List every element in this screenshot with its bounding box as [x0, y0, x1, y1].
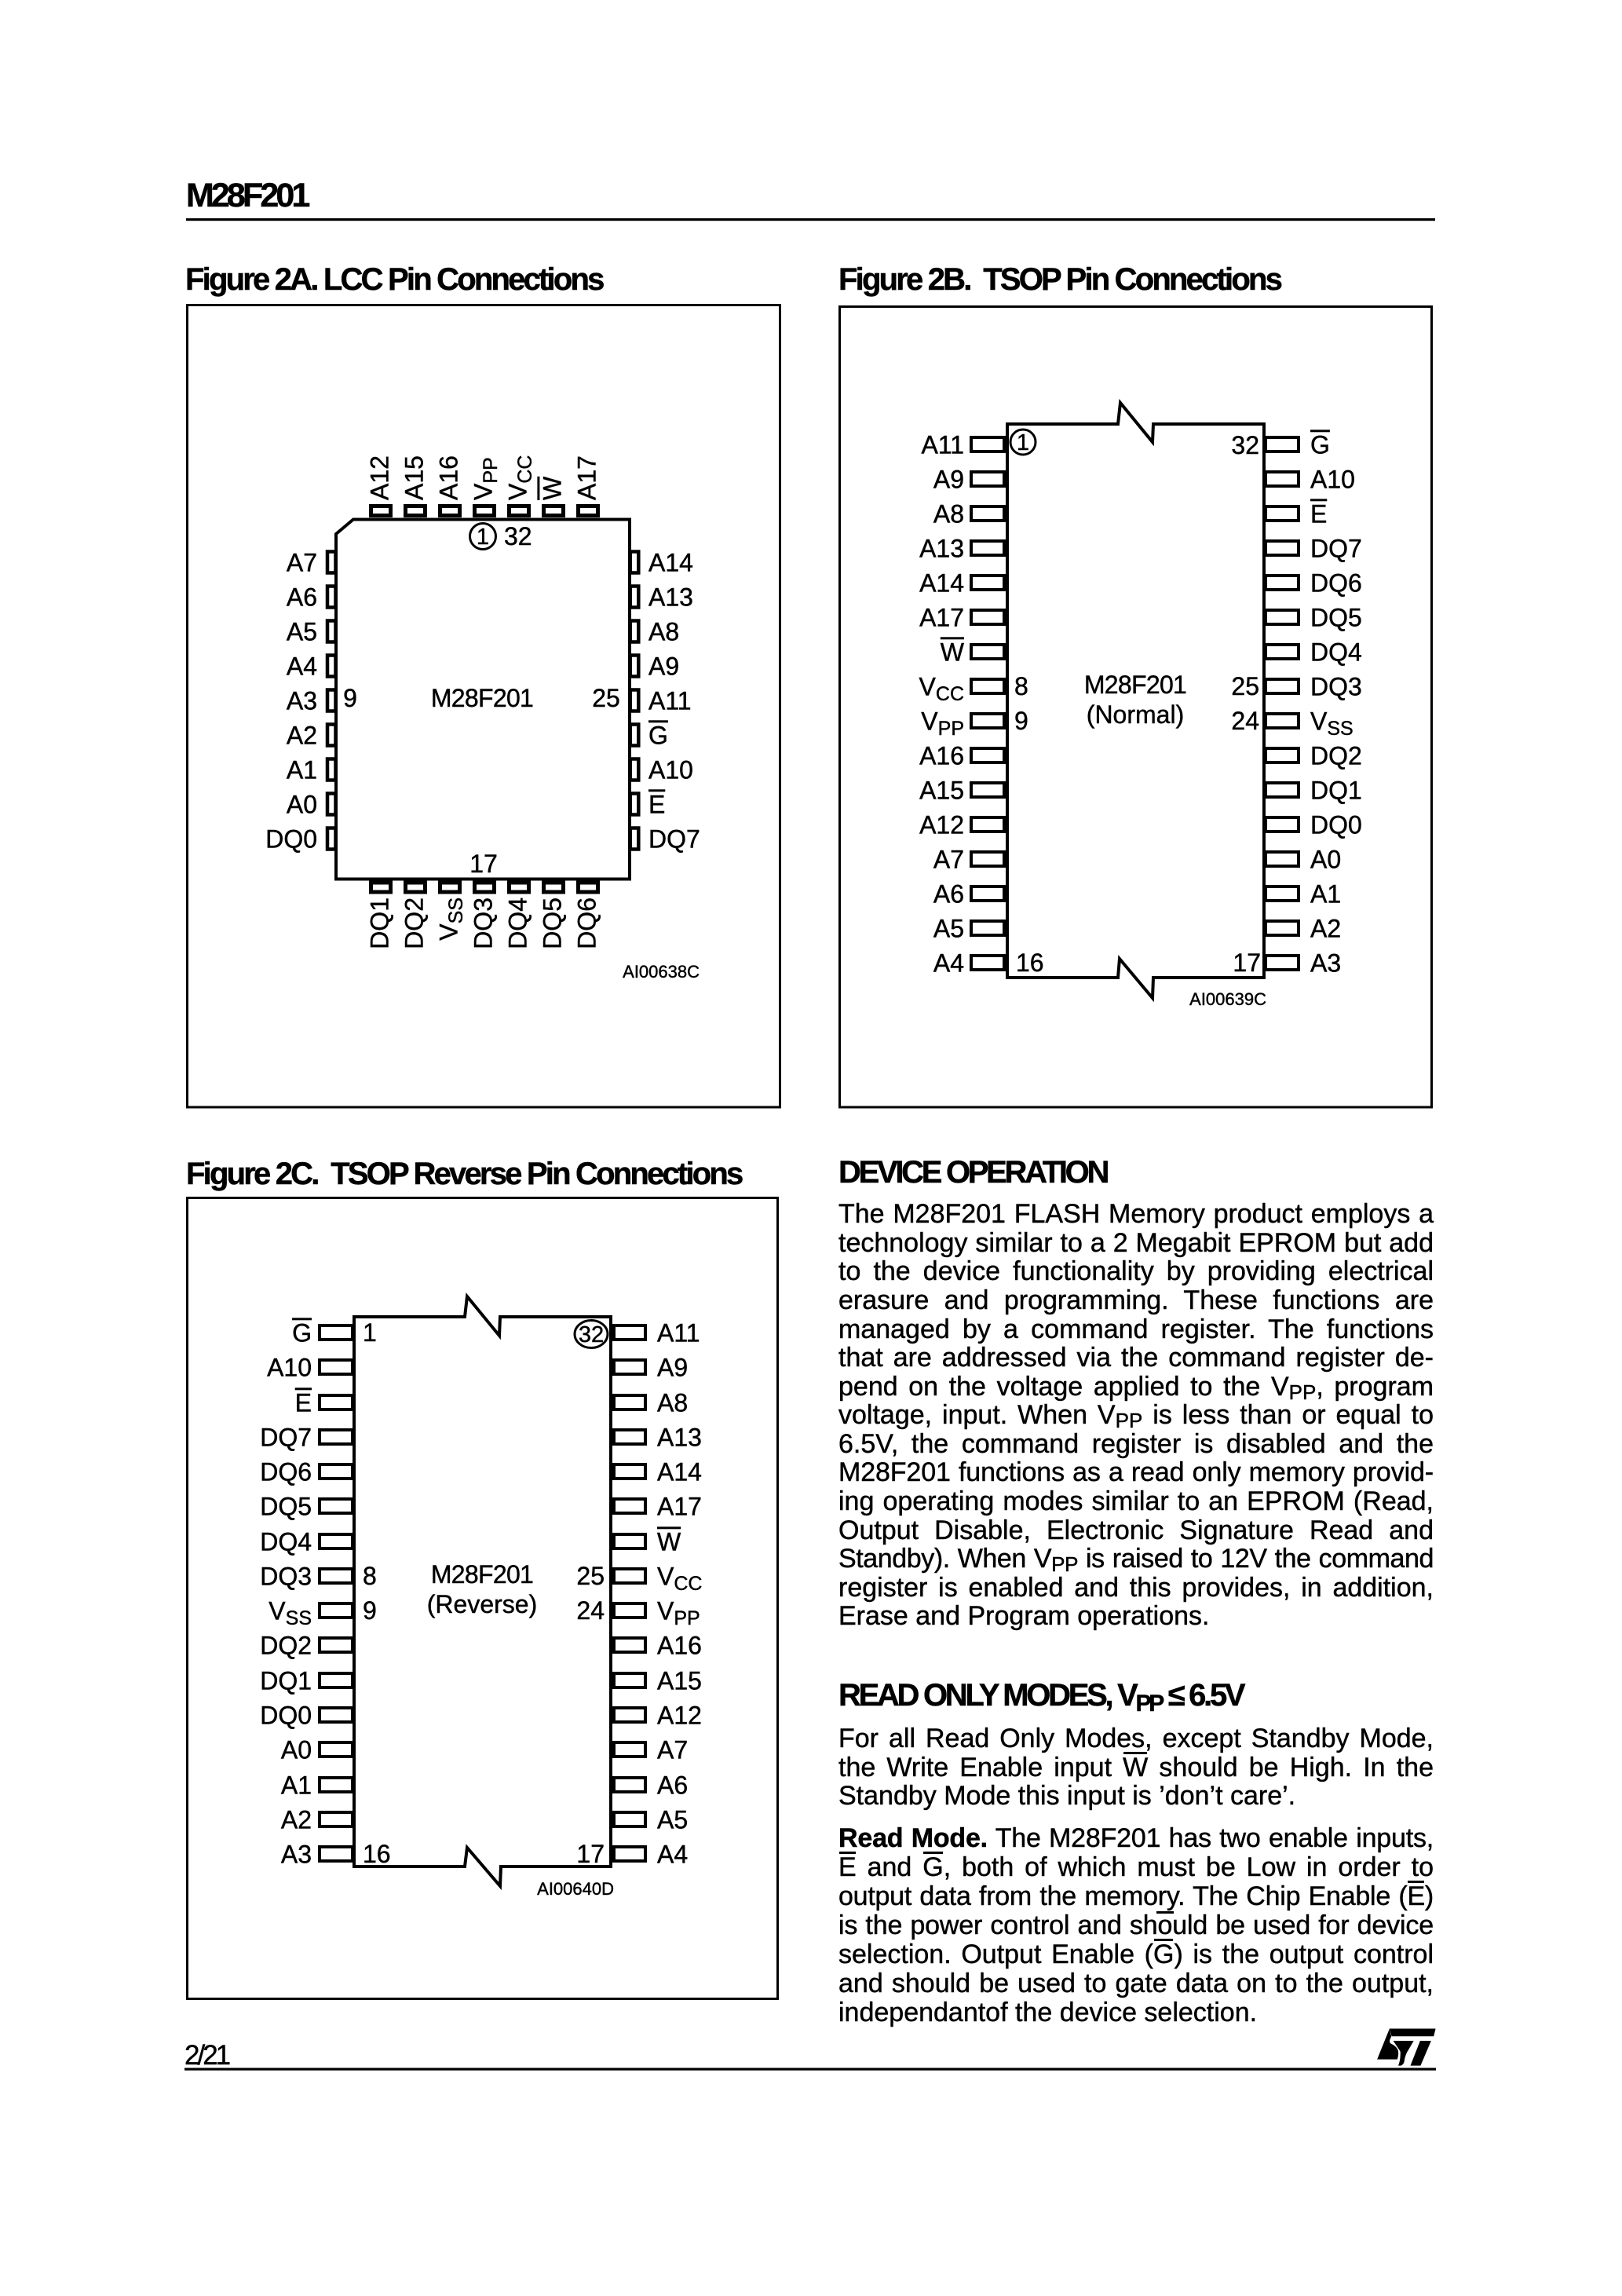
- svg-text:DQ2: DQ2: [400, 898, 428, 949]
- svg-text:A9: A9: [648, 652, 679, 680]
- svg-text:A3: A3: [1310, 949, 1341, 977]
- svg-text:DQ1: DQ1: [1310, 776, 1362, 804]
- svg-text:W: W: [941, 638, 965, 666]
- svg-text:A1: A1: [287, 755, 317, 784]
- svg-text:A0: A0: [1310, 845, 1341, 873]
- svg-text:A2: A2: [281, 1805, 312, 1834]
- svg-text:Figure 2A. LCC Pin Connections: Figure 2A. LCC Pin Connections: [185, 262, 604, 297]
- svg-text:A8: A8: [933, 499, 964, 528]
- svg-text:A5: A5: [287, 617, 317, 645]
- svg-text:DQ5: DQ5: [1310, 603, 1362, 631]
- svg-text:A4: A4: [657, 1840, 688, 1868]
- svg-text:DQ2: DQ2: [1310, 741, 1362, 770]
- svg-text:Figure 2C. TSOP Reverse Pin C: Figure 2C. TSOP Reverse Pin Connections: [186, 1157, 743, 1191]
- svg-text:1: 1: [477, 525, 489, 550]
- svg-text:A15: A15: [657, 1666, 702, 1695]
- svg-text:W: W: [538, 476, 566, 500]
- svg-text:A10: A10: [267, 1353, 312, 1381]
- svg-text:A2: A2: [287, 721, 317, 749]
- svg-text:A14: A14: [919, 569, 964, 597]
- svg-text:16: 16: [363, 1840, 391, 1868]
- svg-text:A14: A14: [657, 1457, 702, 1486]
- svg-text:24: 24: [1231, 707, 1259, 735]
- svg-text:32: 32: [504, 522, 532, 550]
- svg-text:DQ0: DQ0: [260, 1701, 312, 1729]
- svg-text:32: 32: [1231, 431, 1259, 459]
- svg-text:DQ7: DQ7: [648, 824, 700, 853]
- svg-text:A10: A10: [1310, 465, 1355, 493]
- svg-text:9: 9: [363, 1596, 377, 1625]
- svg-text:A6: A6: [657, 1771, 688, 1799]
- svg-text:W: W: [657, 1527, 681, 1556]
- svg-text:A16: A16: [434, 455, 462, 500]
- svg-text:VSS: VSS: [1310, 707, 1353, 740]
- svg-text:A11: A11: [657, 1318, 700, 1347]
- svg-text:8: 8: [363, 1562, 377, 1590]
- svg-text:24: 24: [576, 1596, 605, 1625]
- svg-text:VSS: VSS: [269, 1596, 312, 1629]
- svg-text:VCC: VCC: [503, 455, 536, 500]
- svg-text:A9: A9: [657, 1353, 688, 1381]
- svg-text:25: 25: [592, 684, 620, 712]
- svg-text:32: 32: [579, 1322, 604, 1347]
- svg-text:A13: A13: [648, 583, 693, 611]
- svg-text:A2: A2: [1310, 914, 1341, 942]
- svg-text:DQ4: DQ4: [503, 898, 532, 949]
- svg-text:A14: A14: [648, 548, 693, 576]
- svg-text:8: 8: [1014, 672, 1028, 700]
- svg-text:A3: A3: [287, 686, 317, 715]
- svg-text:25: 25: [576, 1562, 605, 1590]
- svg-text:DQ0: DQ0: [1310, 810, 1362, 839]
- svg-text:17: 17: [576, 1840, 605, 1868]
- svg-text:A3: A3: [281, 1840, 312, 1868]
- svg-text:2/21: 2/21: [184, 2040, 230, 2071]
- svg-text:9: 9: [343, 684, 357, 712]
- svg-text:A0: A0: [287, 790, 317, 818]
- svg-text:DQ4: DQ4: [260, 1527, 312, 1556]
- svg-text:M28F201: M28F201: [431, 1560, 533, 1589]
- svg-text:A4: A4: [287, 652, 317, 680]
- svg-text:A7: A7: [933, 845, 964, 873]
- svg-text:A15: A15: [919, 776, 964, 804]
- svg-text:1: 1: [363, 1318, 377, 1347]
- svg-text:DQ4: DQ4: [1310, 638, 1362, 666]
- svg-text:DEVICE OPERATION: DEVICE OPERATION: [838, 1155, 1108, 1190]
- svg-text:A16: A16: [657, 1631, 702, 1659]
- svg-text:A15: A15: [400, 455, 428, 500]
- svg-text:A17: A17: [572, 455, 601, 500]
- svg-text:A5: A5: [657, 1805, 688, 1834]
- svg-text:16: 16: [1016, 949, 1044, 977]
- svg-text:VPP: VPP: [921, 707, 964, 740]
- svg-text:Figure 2B. TSOP Pin Connectio: Figure 2B. TSOP Pin Connections: [838, 262, 1282, 297]
- svg-text:A8: A8: [657, 1388, 688, 1417]
- svg-text:DQ7: DQ7: [260, 1423, 312, 1451]
- svg-text:A16: A16: [919, 741, 964, 770]
- svg-text:G: G: [292, 1318, 312, 1347]
- svg-text:AI00638C: AI00638C: [623, 962, 700, 982]
- svg-text:A10: A10: [648, 755, 693, 784]
- svg-text:DQ1: DQ1: [260, 1666, 312, 1695]
- svg-text:DQ6: DQ6: [1310, 569, 1362, 597]
- svg-text:A7: A7: [657, 1735, 688, 1764]
- svg-text:A17: A17: [657, 1492, 702, 1520]
- svg-text:A13: A13: [919, 534, 964, 562]
- svg-text:E: E: [648, 790, 665, 818]
- svg-text:VPP: VPP: [469, 457, 502, 500]
- svg-text:(Normal): (Normal): [1087, 700, 1184, 729]
- svg-text:A7: A7: [287, 548, 317, 576]
- svg-text:A4: A4: [933, 949, 964, 977]
- svg-text:1: 1: [1017, 430, 1029, 455]
- svg-text:G: G: [1310, 430, 1330, 459]
- svg-text:DQ1: DQ1: [365, 898, 393, 949]
- svg-text:A9: A9: [933, 465, 964, 493]
- svg-text:DQ3: DQ3: [469, 898, 497, 949]
- svg-text:A1: A1: [1310, 879, 1341, 908]
- svg-text:DQ5: DQ5: [538, 898, 566, 949]
- svg-text:AI00639C: AI00639C: [1189, 989, 1266, 1009]
- svg-text:A17: A17: [919, 603, 964, 631]
- svg-text:(Reverse): (Reverse): [427, 1590, 537, 1618]
- svg-text:DQ6: DQ6: [260, 1457, 312, 1486]
- svg-text:DQ3: DQ3: [260, 1562, 312, 1590]
- svg-text:A8: A8: [648, 617, 679, 645]
- svg-text:DQ5: DQ5: [260, 1492, 312, 1520]
- svg-text:DQ3: DQ3: [1310, 672, 1362, 700]
- svg-text:VCC: VCC: [919, 672, 964, 705]
- svg-text:VCC: VCC: [657, 1562, 702, 1595]
- svg-text:A11: A11: [648, 686, 692, 715]
- svg-text:A11: A11: [921, 430, 964, 459]
- svg-text:A12: A12: [919, 810, 964, 839]
- svg-text:25: 25: [1231, 672, 1259, 700]
- svg-text:M28F201: M28F201: [1084, 671, 1186, 699]
- svg-text:DQ2: DQ2: [260, 1631, 312, 1659]
- svg-text:A5: A5: [933, 914, 964, 942]
- svg-text:G: G: [648, 721, 668, 749]
- svg-text:A6: A6: [287, 583, 317, 611]
- svg-text:VSS: VSS: [434, 898, 467, 941]
- svg-text:DQ6: DQ6: [572, 898, 601, 949]
- svg-text:DQ0: DQ0: [265, 824, 317, 853]
- svg-text:A1: A1: [281, 1771, 312, 1799]
- svg-text:A0: A0: [281, 1735, 312, 1764]
- svg-text:AI00640D: AI00640D: [537, 1879, 614, 1899]
- svg-text:E: E: [1310, 499, 1327, 528]
- svg-text:E: E: [295, 1388, 312, 1417]
- svg-text:A13: A13: [657, 1423, 702, 1451]
- svg-text:VPP: VPP: [657, 1596, 700, 1629]
- svg-text:9: 9: [1014, 707, 1028, 735]
- svg-text:17: 17: [469, 850, 498, 878]
- svg-text:DQ7: DQ7: [1310, 534, 1362, 562]
- svg-text:READ ONLY MODES, VPP ≤ 6.5V: READ ONLY MODES, VPP ≤ 6.5V: [838, 1678, 1246, 1717]
- svg-text:A6: A6: [933, 879, 964, 908]
- svg-text:A12: A12: [365, 455, 393, 500]
- svg-text:M28F201: M28F201: [186, 177, 309, 214]
- svg-text:17: 17: [1233, 949, 1261, 977]
- svg-text:A12: A12: [657, 1701, 702, 1729]
- svg-text:M28F201: M28F201: [431, 684, 533, 712]
